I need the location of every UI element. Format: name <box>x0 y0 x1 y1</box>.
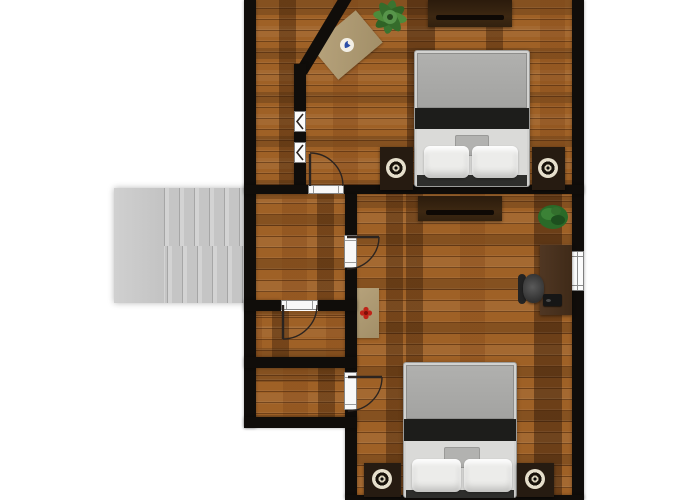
lamp <box>386 158 406 178</box>
lamp <box>372 469 392 489</box>
laptop-detail <box>546 299 551 302</box>
bed-band <box>404 419 516 441</box>
staircase <box>114 188 246 303</box>
potted-plant-north <box>370 0 410 37</box>
wall-between-closets <box>244 357 357 368</box>
potted-plant-south <box>536 202 570 232</box>
dresser-handle <box>436 15 504 20</box>
stair-flight-lower <box>164 246 246 303</box>
interior-window-1 <box>294 111 306 132</box>
wall-outline-bottom-left <box>244 417 357 428</box>
lamp <box>525 469 545 489</box>
floor-closet-lower <box>256 368 345 417</box>
wall-hall-closet-right <box>318 300 357 311</box>
nightstand-south-right <box>517 463 554 497</box>
laptop <box>543 294 562 306</box>
office-chair-seat <box>523 274 544 303</box>
nightstand-north-right <box>532 147 565 190</box>
stair-flight-upper <box>164 188 246 246</box>
rug-emblem-red <box>359 306 373 320</box>
nightstand-south-left <box>364 463 401 497</box>
wall-corridor-1 <box>294 64 306 111</box>
wall-north-south-left <box>244 185 308 194</box>
bed-pillow-right <box>472 146 518 178</box>
lamp <box>538 158 558 178</box>
exterior-window-right <box>571 251 584 291</box>
wall-right <box>572 0 584 500</box>
stair-landing <box>114 188 164 303</box>
door-sill-bedroom-south-lower <box>344 372 357 410</box>
bed-pillow-left <box>424 146 469 178</box>
bed-pillow-left <box>412 459 461 492</box>
nightstand-north-left <box>380 147 413 190</box>
floor-closet-upper <box>256 311 345 357</box>
wall-corridor-3 <box>294 163 306 186</box>
door-sill-bedroom-south-upper <box>344 235 357 268</box>
door-sill-bedroom-north <box>308 185 344 194</box>
dresser-north <box>428 0 512 27</box>
rug-logo-blue <box>336 34 359 57</box>
bed-south <box>403 362 517 498</box>
door-sill-closet-upper <box>281 300 318 310</box>
floor-hallway <box>256 185 345 300</box>
bed-north <box>414 50 530 187</box>
bed-blanket <box>417 53 527 108</box>
bed-pillow-right <box>464 459 512 492</box>
dresser-south <box>418 196 502 221</box>
bed-blanket <box>406 365 514 419</box>
floor-plan <box>0 0 700 500</box>
wall-hall-closet-left <box>244 300 281 311</box>
wall-hall-bedroom-1 <box>345 194 357 235</box>
wall-corridor-2 <box>294 132 306 142</box>
dresser-handle <box>426 210 494 215</box>
interior-window-2 <box>294 142 306 163</box>
bed-band <box>415 108 529 129</box>
